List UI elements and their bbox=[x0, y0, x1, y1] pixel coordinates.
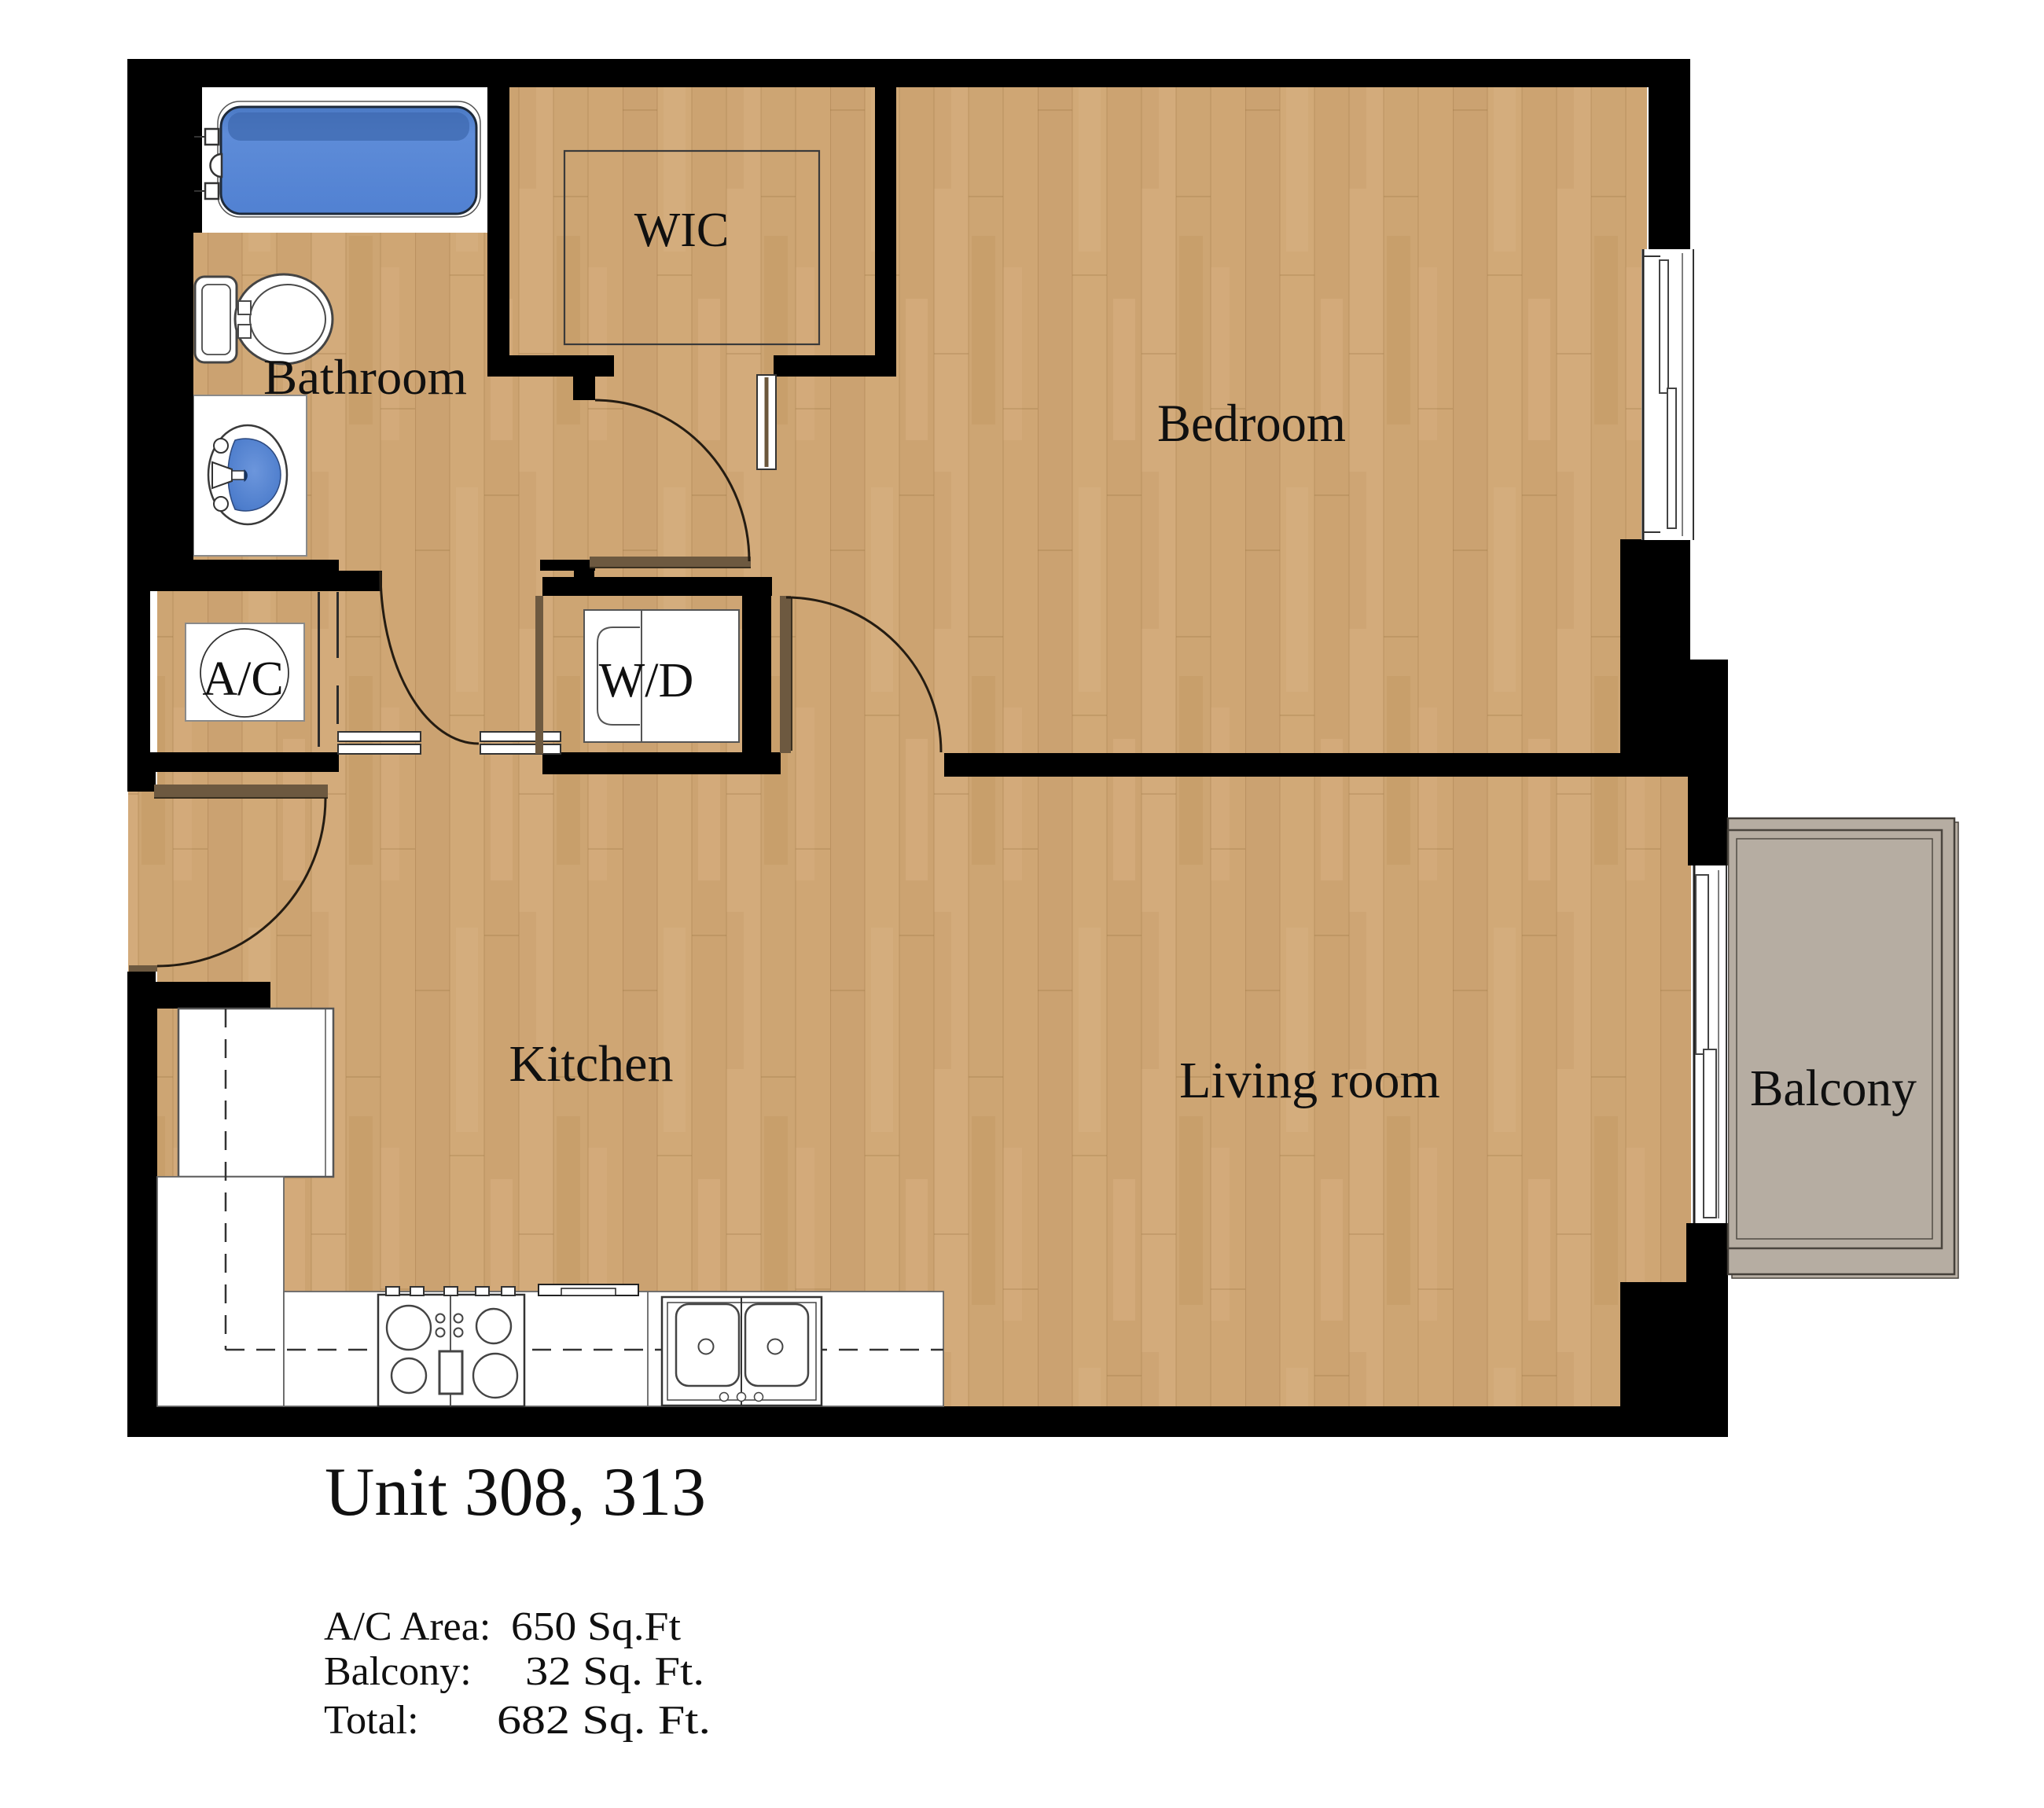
svg-text:A/C Area:: A/C Area: bbox=[324, 1604, 491, 1649]
svg-text:Living room: Living room bbox=[1179, 1052, 1440, 1109]
svg-text:WIC: WIC bbox=[634, 204, 730, 257]
svg-text:32 Sq. Ft.: 32 Sq. Ft. bbox=[525, 1649, 704, 1694]
svg-text:650 Sq.Ft: 650 Sq.Ft bbox=[511, 1604, 682, 1649]
svg-text:682 Sq. Ft.: 682 Sq. Ft. bbox=[497, 1698, 711, 1743]
svg-text:Bedroom: Bedroom bbox=[1157, 393, 1346, 453]
svg-text:Balcony: Balcony bbox=[1750, 1060, 1917, 1117]
svg-text:Balcony:: Balcony: bbox=[324, 1649, 472, 1694]
svg-text:Total:: Total: bbox=[324, 1698, 419, 1743]
svg-text:A/C: A/C bbox=[202, 652, 283, 706]
svg-text:Bathroom: Bathroom bbox=[263, 349, 467, 405]
svg-text:Unit 308, 313: Unit 308, 313 bbox=[325, 1454, 706, 1531]
svg-text:W/D: W/D bbox=[599, 654, 694, 707]
svg-text:Kitchen: Kitchen bbox=[509, 1035, 674, 1093]
